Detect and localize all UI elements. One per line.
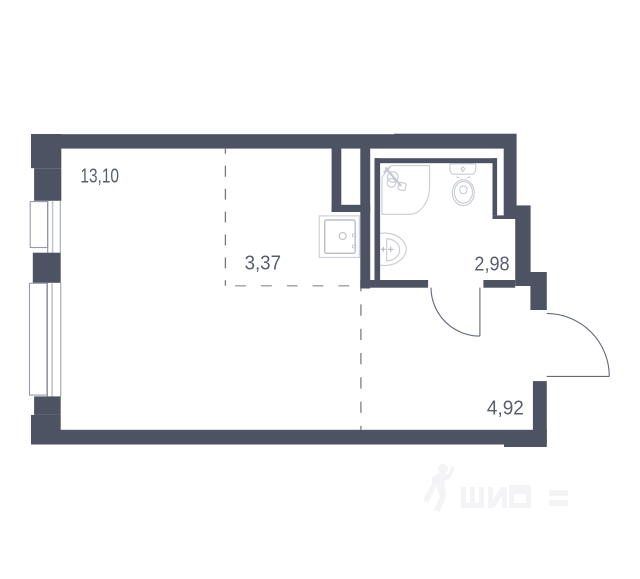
svg-text:2,98: 2,98 [474,254,509,276]
svg-text:13,10: 13,10 [80,166,119,188]
svg-text:4,92: 4,92 [487,398,524,420]
svg-text:3,37: 3,37 [245,253,281,275]
